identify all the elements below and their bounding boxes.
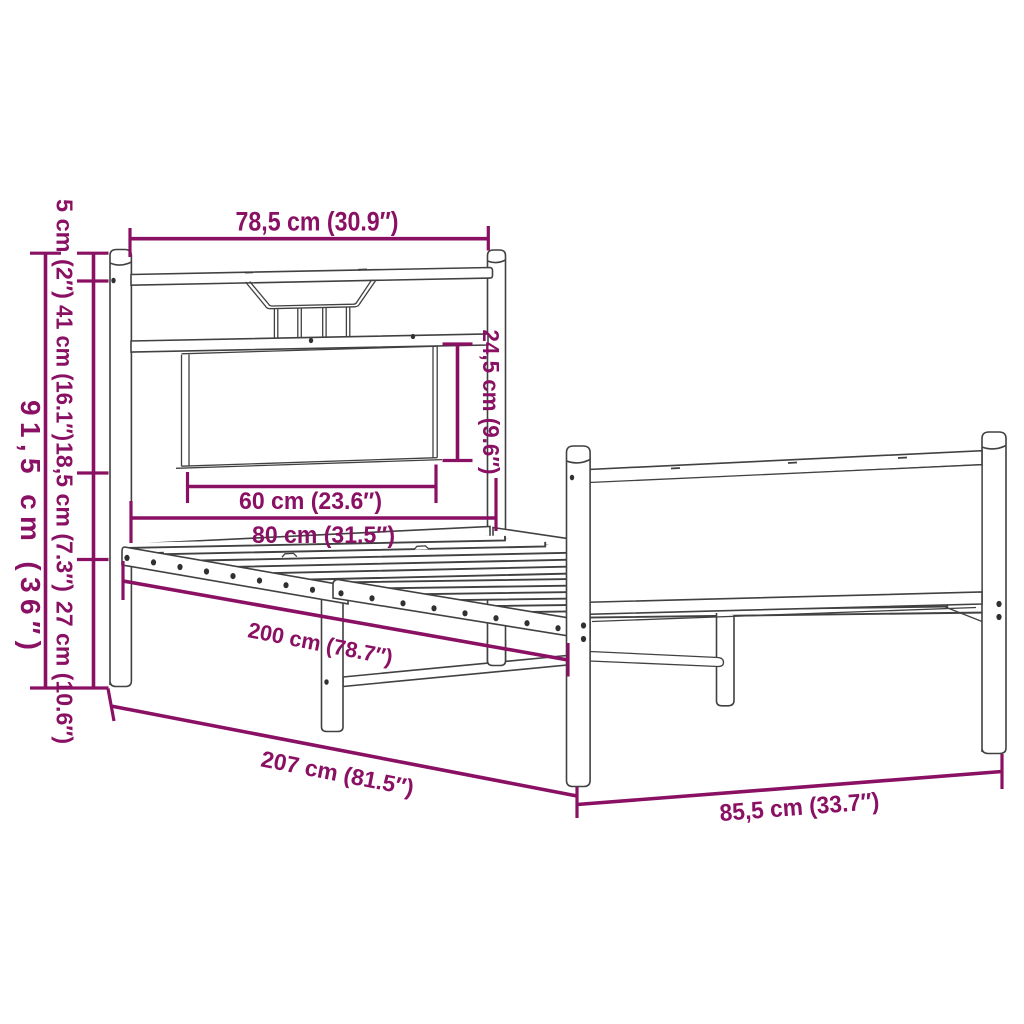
svg-text:78,5 cm (30.9″): 78,5 cm (30.9″) (236, 207, 399, 237)
svg-text:5 cm (2″): 5 cm (2″) (52, 199, 78, 299)
svg-text:207 cm (81.5″): 207 cm (81.5″) (259, 746, 416, 801)
svg-text:60 cm (23.6″): 60 cm (23.6″) (239, 488, 382, 515)
svg-text:24,5 cm (9.6″): 24,5 cm (9.6″) (478, 330, 504, 475)
svg-text:80 cm (31.5″): 80 cm (31.5″) (252, 522, 395, 549)
svg-text:91,5 cm (36″): 91,5 cm (36″) (15, 400, 46, 650)
svg-text:41 cm (16.1″): 41 cm (16.1″) (52, 305, 78, 441)
svg-text:27 cm (10.6″): 27 cm (10.6″) (52, 601, 78, 744)
svg-text:18,5 cm (7.3″): 18,5 cm (7.3″) (52, 442, 78, 592)
svg-text:85,5 cm (33.7″): 85,5 cm (33.7″) (719, 788, 881, 827)
